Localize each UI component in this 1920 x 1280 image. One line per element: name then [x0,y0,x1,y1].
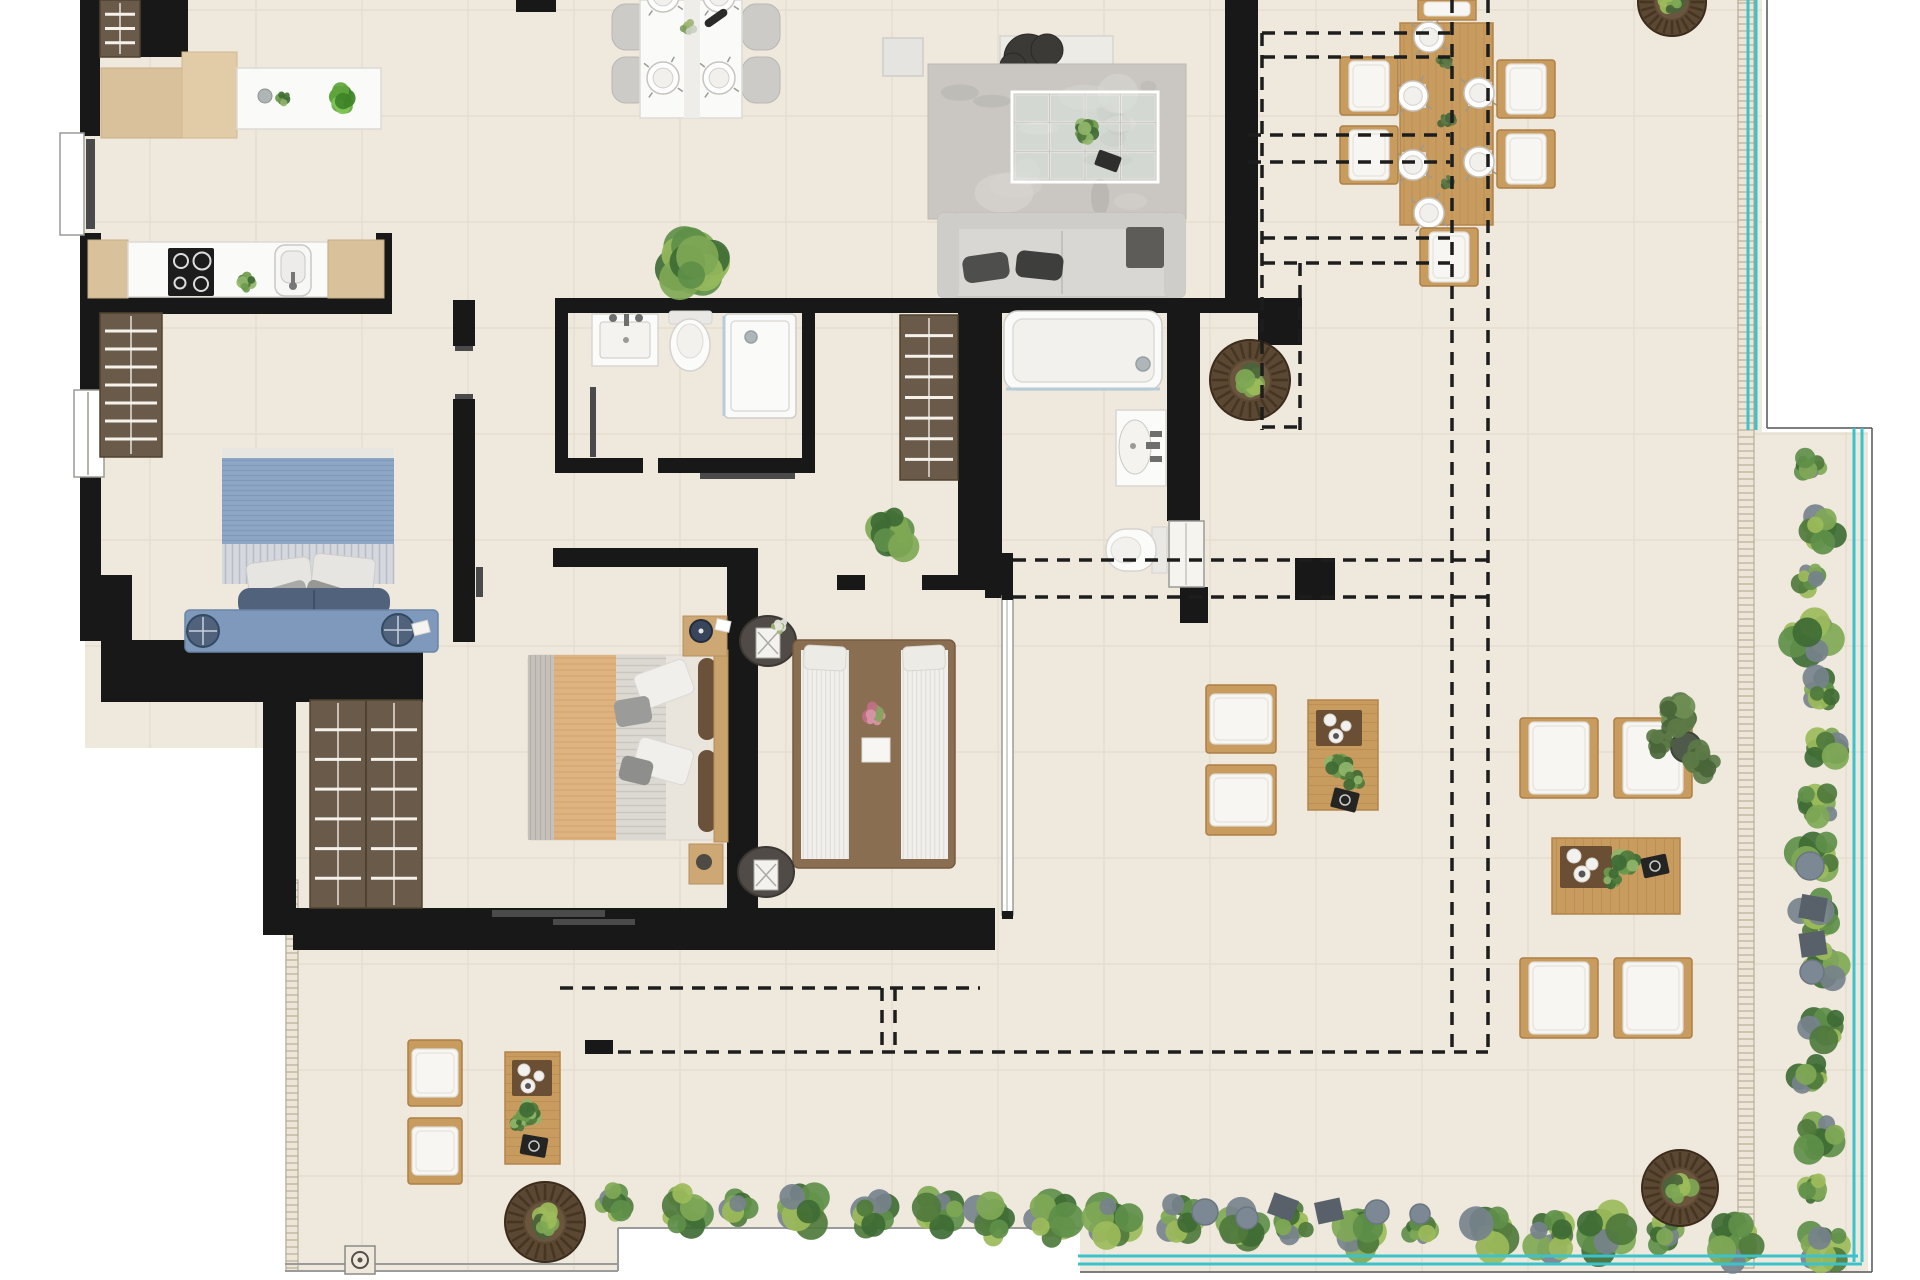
nightstand-card [715,619,731,633]
decor-stones [1236,1207,1258,1229]
tray-jug-center [525,1083,531,1089]
bath2-sink-taps [1150,456,1162,462]
sofa-arm-right [1164,213,1185,297]
leaf [990,1220,1009,1239]
master-bed-book [862,738,890,762]
leaf [1325,761,1338,774]
leaf [284,92,289,97]
glass-pane [1122,95,1156,122]
outdoor-dining-chair [1340,57,1398,115]
leaf [1795,1064,1816,1085]
plate-center [1420,28,1439,47]
dining [612,0,780,118]
door-panel [590,387,596,457]
outdoor-chair-top-cushion [1424,2,1470,16]
table-plant [1343,770,1365,790]
plate-center [1404,87,1423,106]
leaf [687,19,694,26]
leaf [1611,855,1627,871]
wall-segment [140,0,188,57]
bath2-sink-taps [1146,442,1160,449]
plate-center [709,68,729,88]
drain-strip-right [1738,0,1754,1268]
leaf [1666,5,1675,14]
rug-mottle [1091,179,1109,216]
leaf [1830,1228,1846,1244]
leaf [1664,732,1673,741]
floorplan-stage [0,0,1920,1280]
leaf [1699,760,1717,778]
leaf [1418,1225,1436,1243]
glass-pane [1051,152,1085,179]
outdoor-dining-chair [1497,60,1555,118]
glass-pane [1015,152,1049,179]
sofa-tray-table [1126,227,1164,268]
door-panel [455,394,473,399]
outdoor-dining-chair-cushion [1349,130,1389,180]
leaf [1656,1228,1673,1245]
wall-segment [1225,0,1258,313]
floorplan-svg [0,0,1920,1280]
leaf [280,99,287,106]
leaf [667,1215,686,1234]
leaf [1444,183,1450,189]
decor-stones [1800,960,1824,984]
wardrobe-bedroom1 [100,313,162,457]
door-panel [476,567,483,597]
bath1-toilet-seat [677,324,703,358]
sink-faucet [289,282,297,290]
wall-segment [1180,587,1208,623]
lounge-chair-cushion [1529,722,1589,794]
leaf [247,276,255,284]
leaf [1627,860,1639,872]
leaf [1811,530,1836,555]
leaf [1793,618,1823,648]
plate-center [1420,204,1439,223]
outdoor-dining-chair-cushion [1349,61,1389,111]
wall-segment [555,313,568,473]
sofa-arm-left [938,213,959,297]
rug-mottle [973,95,1011,108]
lounge-chair-cushion [1210,774,1272,826]
leaf [856,1199,873,1216]
plate-center [653,68,673,88]
tray-cups [518,1064,530,1076]
dining-chair [742,4,780,50]
glass-pane [1122,152,1156,179]
leaf [1650,730,1664,744]
door-panel [553,919,635,925]
leaf [1707,1235,1736,1264]
wall-segment [1295,558,1335,600]
nightstand-decor [696,854,712,870]
leaf [797,1200,821,1224]
kitchen-counter-bottom-wood-left [88,240,128,298]
tray-cups [1341,721,1351,731]
leaf [1822,743,1849,770]
decor-stone-boxes [1798,930,1827,957]
leaf [241,283,249,291]
door-panel [86,139,95,229]
wall-segment [553,548,728,567]
lounge-chair [1206,685,1276,753]
bathtub-drain [1136,357,1150,371]
leaf [672,1183,692,1203]
leaf [1354,775,1363,784]
leaf [1552,1219,1572,1239]
leaf [1298,1222,1314,1238]
rug-mottle [1114,193,1147,209]
outdoor-dining-chair [1497,130,1555,188]
leaf [1609,868,1619,878]
door-panel [492,910,605,917]
wardrobe-kitchen-corner [100,0,140,57]
wall-segment [555,458,643,473]
master-window-jamb [1002,592,1013,600]
leaf [604,1182,621,1199]
leaf [1808,571,1824,587]
shower-tray [724,314,796,418]
bed-plant [912,1186,965,1240]
decor-stones [1796,852,1824,880]
master-pillow [803,645,846,671]
kitchen-counter-bottom-wood-right [328,240,384,298]
bed2-headboard [714,650,728,842]
leaf [1794,1134,1825,1165]
wall-segment [80,0,100,136]
leaf [1446,175,1450,179]
wall-segment [585,1040,613,1054]
kitchen-counter-left-top [182,52,237,138]
tray-cups [1567,849,1581,863]
lounge-chair-cushion [1623,962,1683,1034]
leaf [1577,1211,1603,1237]
lounge-chair [1520,718,1598,798]
wall-segment [516,0,556,12]
bath2-sink-taps [1150,431,1162,437]
leaf [946,1201,963,1218]
dining-chair [742,57,780,103]
leaf [335,93,351,109]
lounge-chair [408,1040,462,1106]
wall-segment [985,553,1013,598]
lounge-chair-cushion [1210,694,1272,744]
leaf [885,508,904,527]
leaf [278,92,285,99]
wall-segment [1167,313,1200,521]
decor-stones [1192,1199,1218,1225]
leaf [1665,1184,1680,1199]
decor-stone-boxes [1798,894,1828,922]
bed2-bolster [698,658,716,740]
leaf [1603,877,1611,885]
glass-pane [1122,124,1156,151]
leaf [1605,1213,1637,1245]
lounge-chair [408,1118,462,1184]
leaf [976,1191,1004,1219]
leaf [1235,369,1255,389]
tray-cups [534,1071,544,1081]
leaf [888,531,919,562]
glass-pane [1015,124,1049,151]
leaf [536,1221,548,1233]
glass-pane [1015,95,1049,122]
leaf [1795,448,1815,468]
round-planter [1642,1150,1718,1226]
plate-center [1470,153,1489,172]
leaf [686,28,693,35]
door-panel [455,346,473,351]
leaf [866,709,876,719]
decor-stones [1365,1200,1389,1224]
round-planter [1210,340,1290,420]
tray-cups [1324,714,1336,726]
plate-center [1404,156,1423,175]
leaf [1808,1227,1831,1250]
bath1-sink-taps [635,314,643,322]
leaf [1811,1174,1826,1189]
lounge-chair [1614,958,1692,1038]
leaf [1807,517,1823,533]
leaf [519,1102,535,1118]
island-bowl [258,89,272,103]
lounge-chair-cushion [412,1049,458,1097]
wall-segment [453,399,475,642]
leaf [1031,1218,1049,1236]
leaf [1092,1221,1121,1250]
leaf [775,623,783,631]
lounge-chair-cushion [412,1127,458,1175]
leaf [1810,686,1825,701]
lounge-chair-cushion [1529,962,1589,1034]
leaf [1798,786,1815,803]
decor-stones [1410,1204,1430,1224]
wall-segment [958,313,1002,588]
outdoor-dining-chair-cushion [1506,134,1546,184]
leaf [516,1120,522,1126]
leaf [1806,805,1830,829]
bed-plant [777,1182,830,1240]
wall-segment [80,575,132,641]
leaf [1827,1010,1844,1027]
round-planter [505,1182,585,1262]
side-table [883,38,923,76]
leaf [1682,752,1700,770]
wardrobe-southwest [310,700,422,908]
leaf [912,1193,941,1222]
wardrobe-hall [900,315,958,480]
leaf [1728,1212,1753,1237]
shower-drain [745,331,757,343]
entry-door-frame [60,133,84,235]
outdoor-dining-chair-cushion [1506,64,1546,114]
wall-segment [101,297,391,314]
drain-strip-right-base [1738,0,1754,1268]
wall-segment [263,702,296,935]
leaf [1459,1206,1494,1241]
sculpture [1031,34,1063,66]
glass-pane [1086,95,1120,122]
rug-mottle [941,84,979,100]
sofa-pillow [1015,250,1065,282]
lounge-chair [1520,958,1598,1038]
glass-pane [1051,95,1085,122]
leaf [1162,1193,1184,1215]
nightstand-clock-center [699,629,704,634]
leaf [1078,122,1091,135]
master-pillow [902,645,945,671]
leaf [610,1200,632,1222]
leaf [729,1195,746,1212]
leaf [1817,783,1837,803]
tray-jug-center [1333,733,1339,739]
leaf [1823,688,1840,705]
leaf [1048,1202,1084,1238]
leaf [1825,1125,1845,1145]
leaf [1343,779,1355,791]
leaf [1530,1222,1547,1239]
wall-segment [658,458,815,473]
leaf [1809,1025,1838,1054]
bed2-bolster [698,750,716,832]
bathtub-inner [1013,319,1154,382]
wall-segment [293,908,995,950]
door-panel [700,473,795,479]
sofa-back [958,213,1165,229]
lounge-chair [1206,765,1276,835]
wall-segment [837,575,865,590]
leaf [678,261,705,288]
leaf [1650,742,1667,759]
wall-segment [453,300,475,346]
floor-drain-dot [358,1258,363,1263]
wall-segment [802,313,815,473]
wall-segment [1258,298,1302,345]
dining-runner [684,0,700,118]
wall-segment [80,477,101,577]
bath2-sink-drain [1130,443,1136,449]
leaf [1275,1219,1291,1235]
wall-segment [455,548,472,567]
bath1-sink-taps [609,314,617,322]
master-window-jamb [1002,911,1013,919]
leaf [1815,832,1837,854]
bath1-sink-spout [624,314,629,326]
leaf [1660,700,1677,717]
leaf [1115,1203,1144,1232]
leaf [1099,1198,1116,1215]
plate-center [1470,84,1489,103]
bath1-sink-drain [623,337,629,343]
tray-jug-center [1579,871,1586,878]
